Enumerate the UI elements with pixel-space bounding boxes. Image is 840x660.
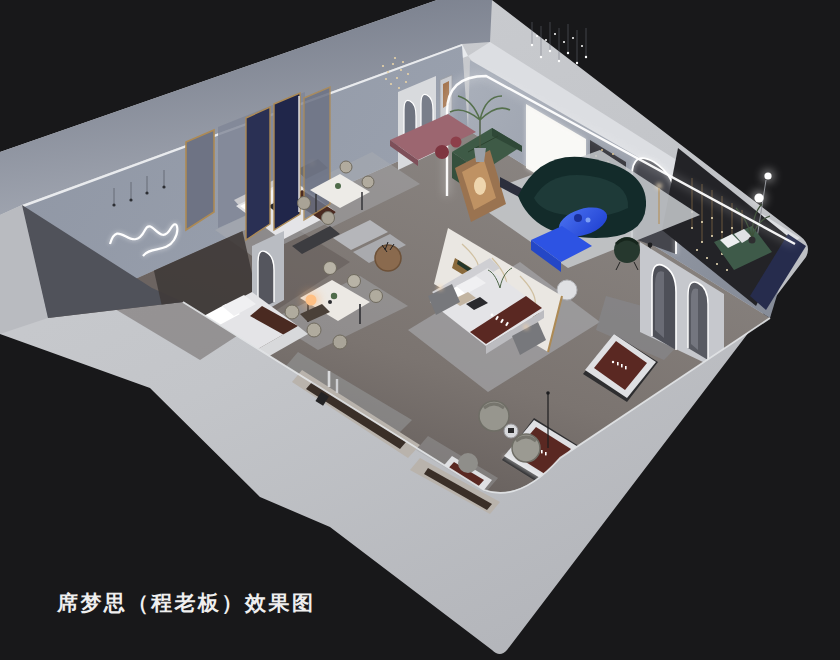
pouf xyxy=(435,145,449,159)
arched-mirror xyxy=(688,282,708,360)
render-canvas xyxy=(0,0,840,660)
round-ottoman xyxy=(458,453,478,473)
render-stage: 席梦思（程老板）效果图 xyxy=(0,0,840,660)
arched-mirror xyxy=(652,265,676,350)
caption: 席梦思（程老板）效果图 xyxy=(57,589,316,617)
round-wood-table xyxy=(375,245,401,271)
pouf xyxy=(451,137,462,148)
